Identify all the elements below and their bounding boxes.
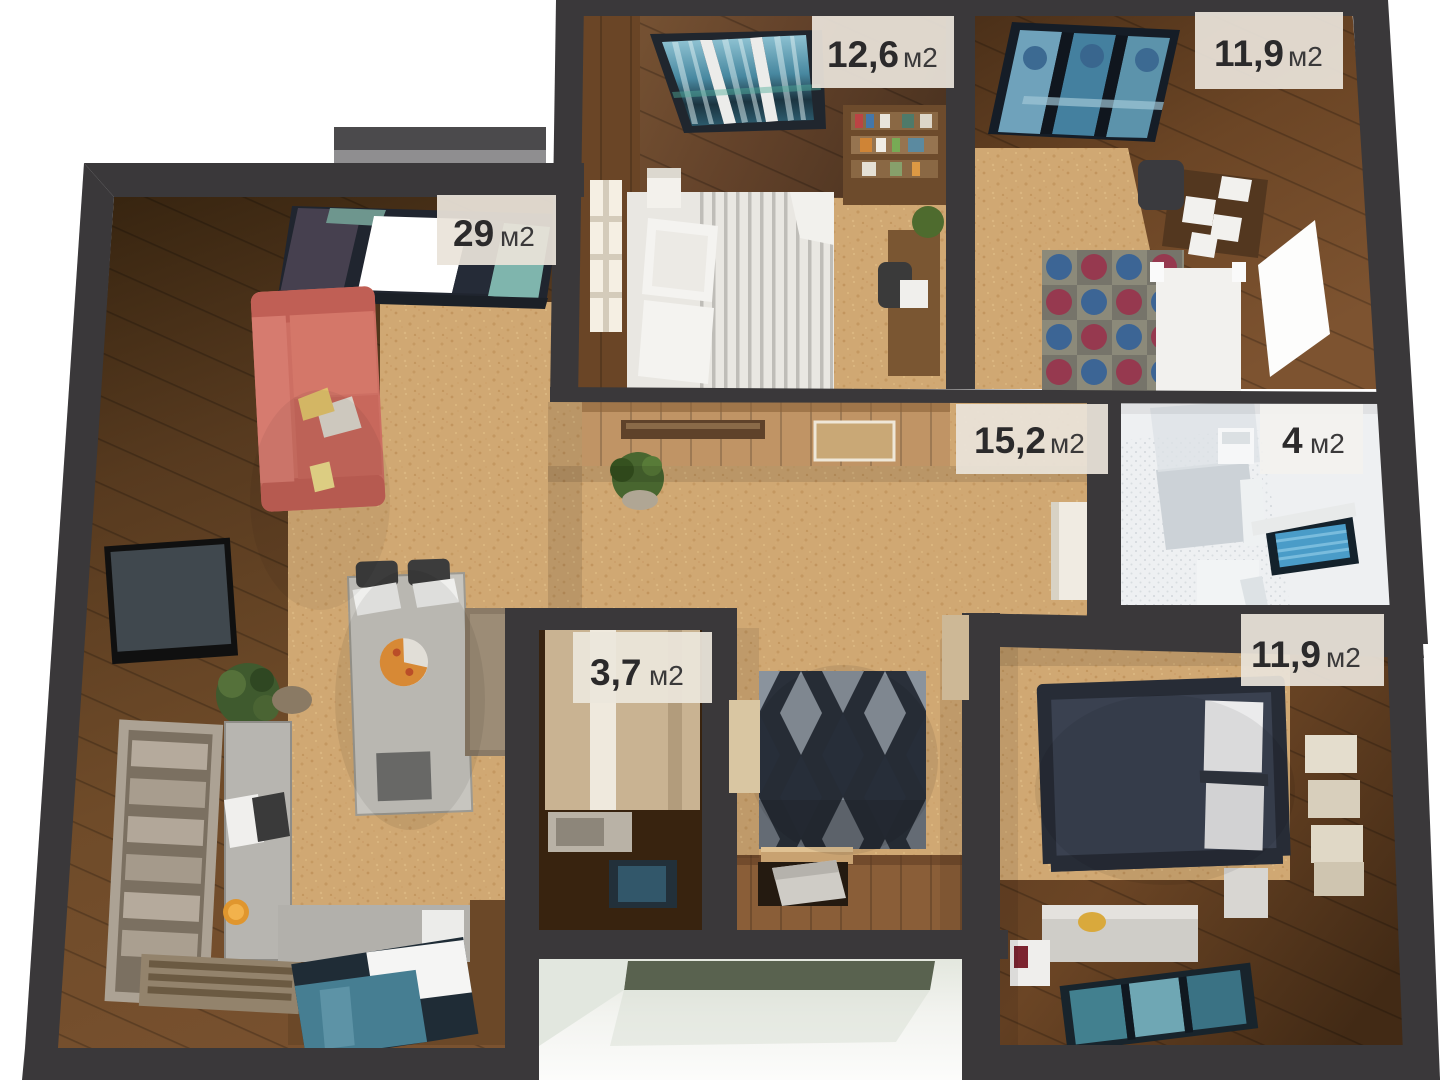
svg-text:м2: м2 (1310, 428, 1345, 459)
svg-text:11,9: 11,9 (1214, 33, 1284, 74)
svg-text:11,9: 11,9 (1251, 634, 1321, 675)
svg-text:м2: м2 (903, 42, 938, 73)
svg-text:м2: м2 (500, 221, 535, 252)
svg-text:м2: м2 (1326, 642, 1361, 673)
svg-text:м2: м2 (1288, 41, 1323, 72)
svg-text:м2: м2 (649, 660, 684, 691)
svg-text:15,2: 15,2 (974, 420, 1046, 461)
svg-text:3,7: 3,7 (590, 652, 641, 693)
svg-text:29: 29 (453, 213, 494, 254)
svg-text:12,6: 12,6 (827, 34, 899, 75)
svg-text:4: 4 (1282, 420, 1303, 461)
svg-text:м2: м2 (1050, 428, 1085, 459)
